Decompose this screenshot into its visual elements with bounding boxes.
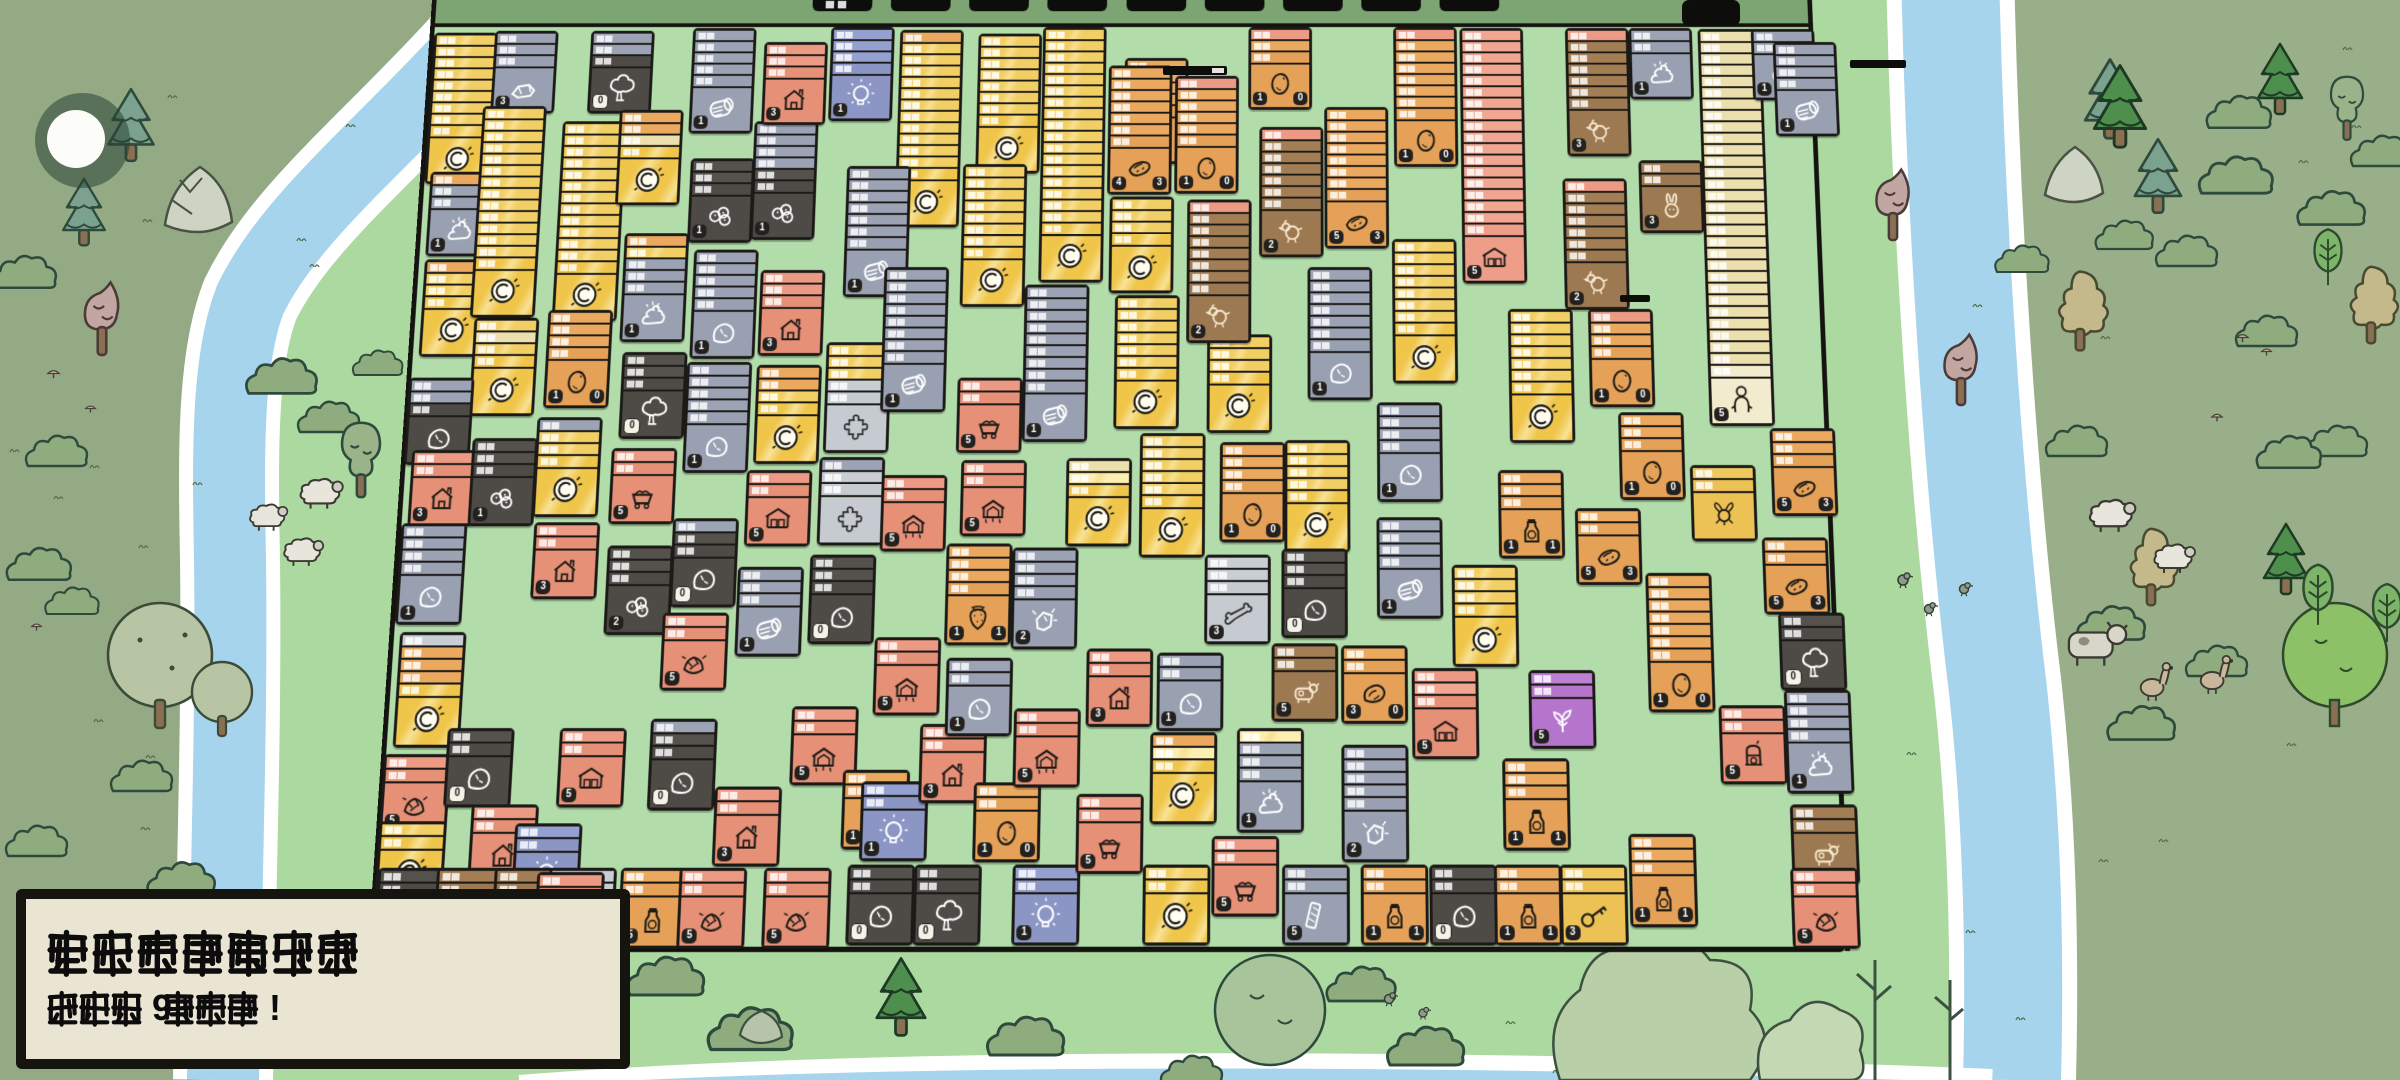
svg-text:!: ! [269,987,281,1028]
